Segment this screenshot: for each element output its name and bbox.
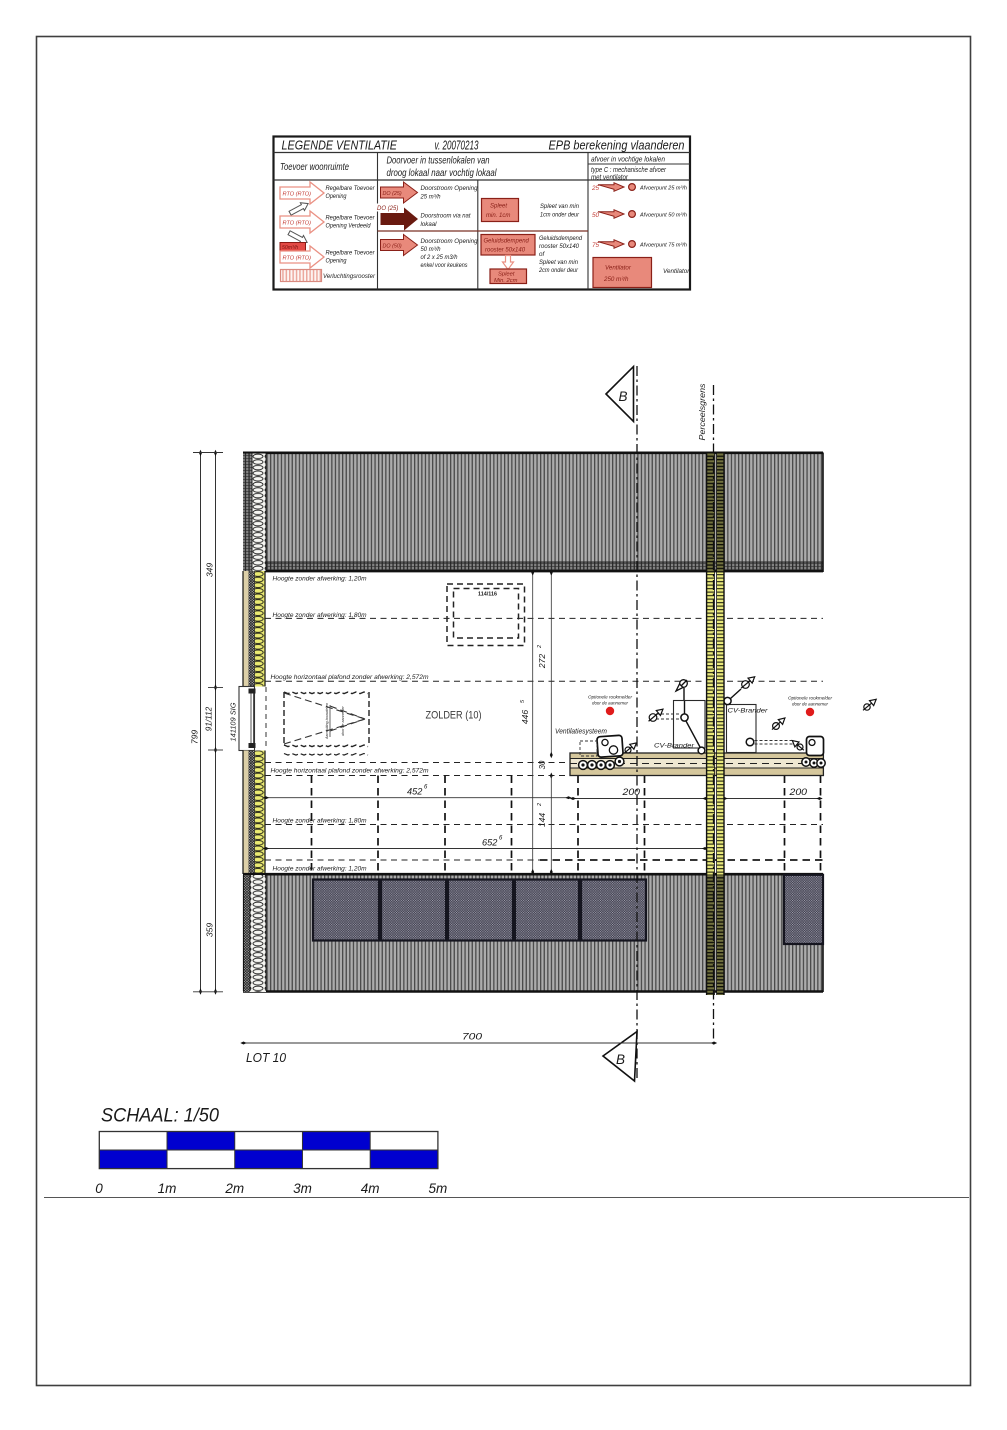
svg-text:272: 272: [537, 654, 547, 670]
svg-text:rooster 50x140: rooster 50x140: [485, 248, 526, 254]
svg-text:2: 2: [537, 645, 543, 649]
svg-text:Regelbare Toevoer: Regelbare Toevoer: [326, 185, 376, 192]
svg-text:LEGENDE VENTILATIE: LEGENDE VENTILATIE: [282, 138, 398, 153]
svg-text:Hoogte zonder afwerking: 1,80m: Hoogte zonder afwerking: 1,80m: [273, 818, 367, 825]
svg-text:30: 30: [538, 760, 547, 769]
svg-text:700: 700: [462, 1032, 482, 1042]
svg-text:Ventilator: Ventilator: [663, 268, 690, 275]
svg-text:Hoogte horizontaal plafond zon: Hoogte horizontaal plafond zonder afwerk…: [271, 674, 429, 681]
svg-text:Spleet van min: Spleet van min: [540, 203, 579, 210]
svg-text:SCHAAL: 1/50: SCHAAL: 1/50: [101, 1106, 219, 1127]
svg-text:Spleet van min: Spleet van min: [539, 259, 578, 266]
svg-text:2cm onder deur: 2cm onder deur: [538, 267, 579, 274]
svg-text:349: 349: [205, 563, 215, 578]
svg-text:3m: 3m: [293, 1181, 312, 1196]
svg-text:droog lokaal naar vochtig loka: droog lokaal naar vochtig lokaal: [387, 167, 497, 179]
svg-text:Aansluiting bouwdelen: Aansluiting bouwdelen: [325, 703, 329, 740]
svg-text:RTO (RTO): RTO (RTO): [283, 192, 312, 198]
svg-text:Optionele rookmelder: Optionele rookmelder: [588, 695, 632, 701]
svg-text:Doorstroom Opening: Doorstroom Opening: [421, 238, 478, 245]
svg-text:144: 144: [537, 813, 547, 828]
svg-text:25 m³/h: 25 m³/h: [420, 194, 441, 201]
svg-text:enkel voor keukens: enkel voor keukens: [421, 262, 469, 269]
svg-text:Opening: Opening: [326, 193, 347, 200]
svg-text:Hoogte zonder afwerking: 1,20m: Hoogte zonder afwerking: 1,20m: [273, 576, 367, 583]
svg-text:Doorvoer in tussenlokalen van: Doorvoer in tussenlokalen van: [387, 155, 490, 167]
svg-text:Optionele rookmelder: Optionele rookmelder: [788, 696, 832, 702]
svg-text:door de aannemer: door de aannemer: [341, 706, 345, 736]
svg-text:Min. 2cm: Min. 2cm: [494, 278, 518, 284]
svg-text:250 m³/h: 250 m³/h: [603, 276, 629, 283]
svg-text:door de aannemer: door de aannemer: [592, 701, 628, 707]
svg-text:CV-Brander: CV-Brander: [728, 708, 769, 715]
svg-text:Verluchtingsrooster: Verluchtingsrooster: [323, 273, 376, 280]
svg-text:141109 SIG: 141109 SIG: [231, 702, 238, 742]
svg-text:Opening Verdeeld: Opening Verdeeld: [326, 223, 371, 230]
svg-text:Afvoerpunt 25 m³/h: Afvoerpunt 25 m³/h: [639, 186, 687, 192]
svg-text:Opening: Opening: [326, 258, 347, 265]
svg-text:CV-Brander: CV-Brander: [654, 743, 695, 750]
svg-text:v. 20070213: v. 20070213: [435, 139, 479, 153]
svg-text:Afvoerpunt 75 m³/h: Afvoerpunt 75 m³/h: [639, 243, 687, 249]
svg-text:114/116: 114/116: [478, 592, 497, 598]
svg-text:Spleet: Spleet: [490, 204, 507, 210]
svg-text:Perceelsgrens: Perceelsgrens: [697, 383, 707, 441]
svg-text:Geluidsdempend: Geluidsdempend: [484, 239, 530, 245]
svg-text:Afvoerpunt 50 m³/h: Afvoerpunt 50 m³/h: [639, 213, 687, 219]
svg-text:Ventilatiesysteem: Ventilatiesysteem: [555, 729, 607, 736]
svg-text:799: 799: [190, 730, 200, 745]
svg-text:min. 1cm: min. 1cm: [486, 213, 510, 219]
svg-text:652: 652: [482, 838, 497, 848]
svg-text:met ventilator: met ventilator: [591, 175, 629, 182]
svg-text:91/112: 91/112: [205, 706, 214, 731]
svg-text:2: 2: [537, 803, 543, 807]
svg-text:5m: 5m: [429, 1181, 448, 1196]
svg-text:LOT 10: LOT 10: [246, 1051, 286, 1065]
svg-text:1m: 1m: [158, 1181, 177, 1196]
svg-text:B: B: [619, 389, 628, 404]
svg-text:RTO (RTO): RTO (RTO): [283, 256, 312, 262]
svg-text:446: 446: [520, 710, 530, 725]
svg-text:452: 452: [407, 787, 422, 797]
svg-text:75: 75: [592, 242, 600, 249]
svg-text:Regelbare Toevoer: Regelbare Toevoer: [326, 215, 376, 222]
svg-text:RTO (RTO): RTO (RTO): [283, 221, 312, 227]
svg-text:type C : mechanische afvoer: type C : mechanische afvoer: [591, 167, 667, 174]
svg-text:1cm onder deur: 1cm onder deur: [540, 212, 580, 219]
svg-text:Hoogte horizontaal plafond zon: Hoogte horizontaal plafond zonder afwerk…: [271, 767, 429, 774]
svg-text:Spleet: Spleet: [498, 272, 515, 278]
svg-text:B: B: [616, 1052, 625, 1067]
svg-text:359: 359: [205, 923, 215, 938]
svg-text:2m: 2m: [224, 1181, 244, 1196]
svg-text:DO (25): DO (25): [383, 191, 402, 197]
svg-text:50 m³/h: 50 m³/h: [421, 246, 441, 253]
svg-text:Ventilator: Ventilator: [605, 265, 632, 272]
svg-text:EPB berekening vlaanderen: EPB berekening vlaanderen: [549, 139, 685, 153]
svg-text:afvoer in vochtige lokalen: afvoer in vochtige lokalen: [591, 157, 665, 164]
svg-text:Toevoer woonruimte: Toevoer woonruimte: [280, 161, 349, 173]
svg-text:Doorstroom Opening: Doorstroom Opening: [421, 185, 478, 192]
svg-text:rooster 50x140: rooster 50x140: [539, 243, 579, 250]
svg-text:of 2 x 25 m3/h: of 2 x 25 m3/h: [421, 254, 458, 261]
svg-text:50m³/h: 50m³/h: [282, 245, 298, 251]
svg-text:25: 25: [591, 185, 600, 192]
svg-text:200: 200: [621, 787, 641, 797]
svg-text:door de aannemer: door de aannemer: [792, 702, 828, 708]
svg-text:DO (50): DO (50): [383, 243, 402, 249]
svg-text:DO (25): DO (25): [377, 206, 398, 212]
svg-text:Regelbare Toevoer: Regelbare Toevoer: [326, 250, 376, 257]
svg-text:200: 200: [788, 787, 808, 797]
svg-text:Geluidsdempend: Geluidsdempend: [539, 235, 582, 242]
svg-text:Doorstroom via nat: Doorstroom via nat: [421, 213, 471, 220]
svg-text:Hoogte zonder afwerking: 1,20m: Hoogte zonder afwerking: 1,20m: [273, 866, 367, 873]
svg-text:ZOLDER (10): ZOLDER (10): [426, 710, 482, 722]
svg-text:50: 50: [592, 212, 600, 219]
svg-text:0: 0: [95, 1181, 103, 1196]
svg-text:lokaal: lokaal: [421, 221, 438, 228]
svg-text:4m: 4m: [361, 1181, 380, 1196]
